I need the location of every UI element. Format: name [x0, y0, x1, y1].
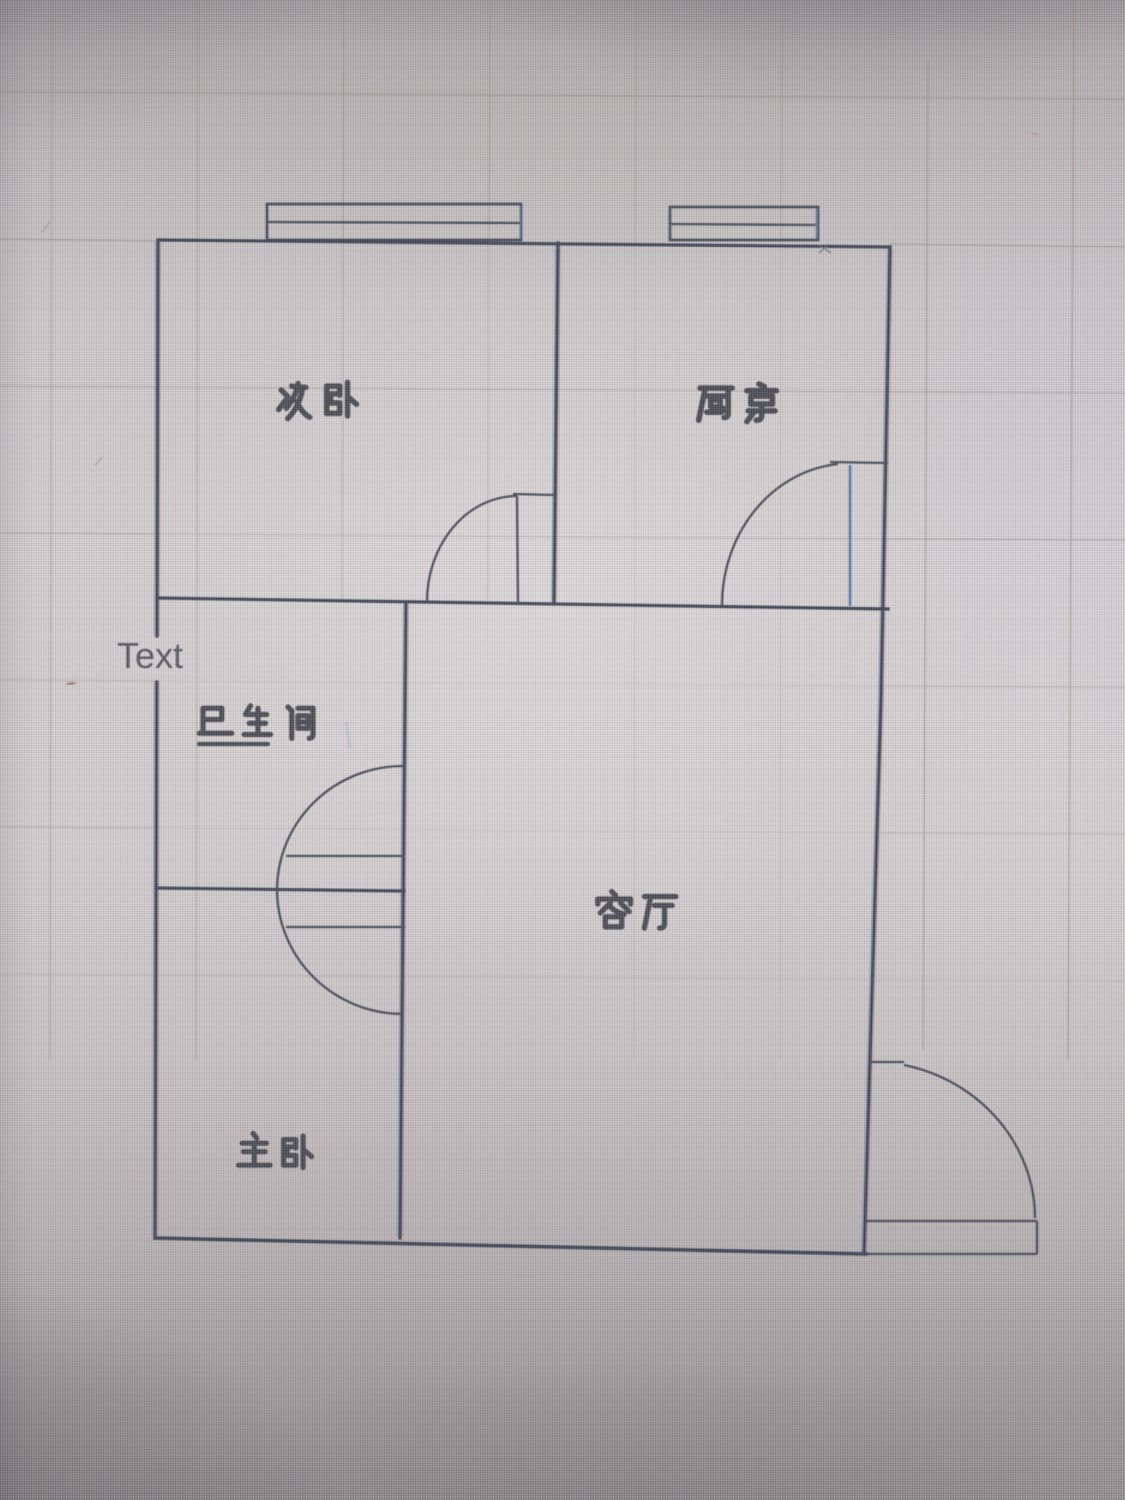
svg-text:Text: Text	[117, 635, 183, 676]
